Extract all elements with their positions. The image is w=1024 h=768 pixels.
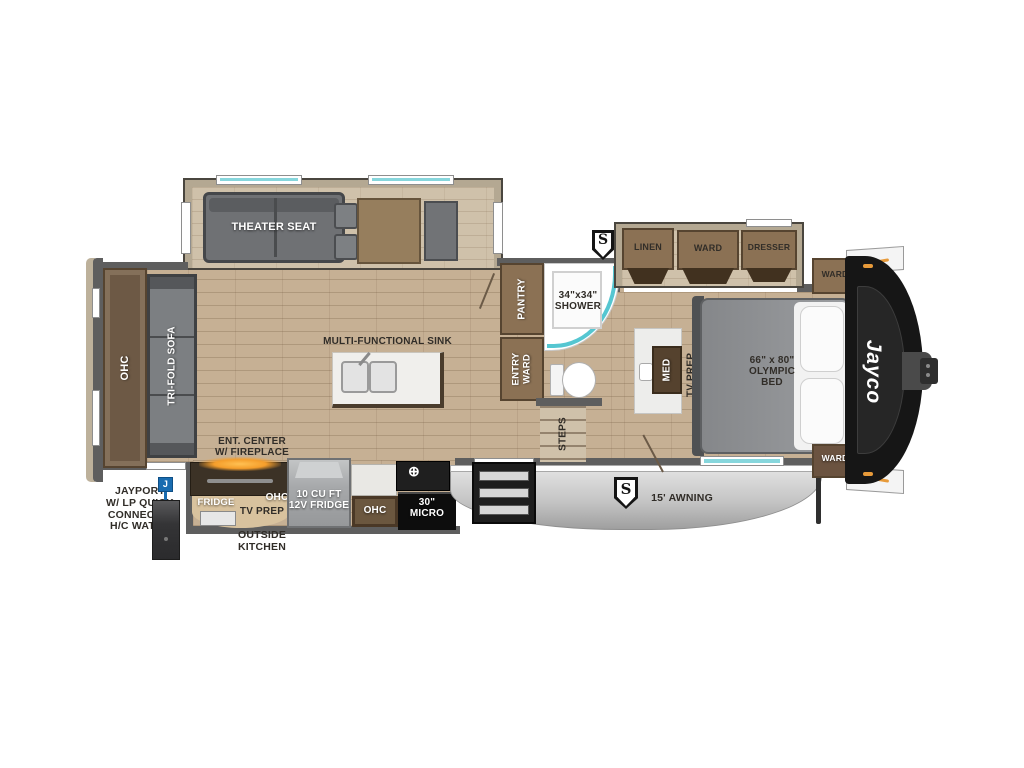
slide-window-left <box>181 202 191 254</box>
bedroom-window-glass <box>704 459 780 463</box>
fridge-12v-label: 10 CU FT 12V FRIDGE <box>287 489 351 511</box>
stabilizer-marker-top-letter: S <box>592 232 614 248</box>
hitch-dot-1 <box>926 364 930 368</box>
kitchen-ohc-label: OHC <box>352 505 398 516</box>
ent-center-shelf <box>207 479 273 483</box>
utility-pedestal <box>152 500 180 560</box>
dinette-chair-2 <box>334 234 358 260</box>
awning-label: 15' AWNING <box>634 493 730 505</box>
fridge-12v-top <box>295 462 343 478</box>
stabilizer-marker-awning-letter: S <box>614 480 638 498</box>
interior-steps-label: STEPS <box>557 407 568 461</box>
dresser-window <box>746 219 792 227</box>
jayport-marker: J <box>158 477 173 492</box>
bottom-rear-opening <box>146 462 186 470</box>
kitchen-counter <box>351 464 397 496</box>
pantry-label: PANTRY <box>516 267 527 331</box>
entry-steps <box>472 462 536 524</box>
shower-label: 34"x34" SHOWER <box>548 290 608 312</box>
stabilizer-marker-top: S <box>592 230 614 260</box>
sink-island <box>332 352 444 408</box>
cap-marker-light-bottom <box>863 472 873 476</box>
sofa-arm-bottom <box>150 443 194 455</box>
hitch-dot-2 <box>926 373 930 377</box>
microwave-label: 30" MICRO <box>398 497 456 519</box>
rear-window-1 <box>92 288 100 318</box>
jayco-logo: Jayco <box>861 312 885 432</box>
bed-label: 66" x 80" OLYMPIC BED <box>722 355 822 389</box>
fireplace-glow <box>199 457 281 471</box>
slide-window-2-glass <box>372 178 450 181</box>
sofa-arm-top <box>150 277 194 289</box>
dresser-front <box>746 268 792 282</box>
dinette-table <box>357 198 421 264</box>
entry-step-1 <box>479 471 529 481</box>
outside-kitchen-title: OUTSIDE KITCHEN <box>224 530 300 554</box>
utility-pedestal-dot <box>164 537 168 541</box>
ent-center-counter <box>190 462 290 496</box>
outside-fridge-icon <box>200 511 236 526</box>
vanity-sink <box>639 363 653 381</box>
bath-wall <box>536 398 602 406</box>
cap-marker-light-top <box>863 264 873 268</box>
floorplan-canvas: THEATER SEAT OHC TRI-FOLD SOFA MULTI-FUN… <box>0 0 1024 768</box>
theater-seat-label: THEATER SEAT <box>213 221 335 233</box>
outside-fridge-label: FRIDGE <box>192 498 240 509</box>
med-label: MED <box>661 348 672 392</box>
sink-label: MULTI-FUNCTIONAL SINK <box>305 336 470 347</box>
burner-icon: ⊕ <box>405 464 423 480</box>
entry-step-2 <box>479 488 529 498</box>
ent-center-label: ENT. CENTER W/ FIREPLACE <box>196 436 308 458</box>
slide-window-right <box>493 202 503 254</box>
jayport-marker-letter: J <box>159 479 172 489</box>
hitch-pin-box <box>920 358 938 384</box>
outside-tv-prep-label: TV PREP <box>236 506 288 517</box>
entry-ward-label: ENTRY WARD <box>511 341 532 397</box>
toilet-bowl <box>562 362 596 398</box>
tri-fold-sofa-label: TRI-FOLD SOFA <box>166 291 177 441</box>
linen-label: LINEN <box>622 242 674 252</box>
rear-ohc-label: OHC <box>119 308 131 428</box>
dinette-chair-1 <box>334 203 358 229</box>
sink-bowl-1 <box>341 361 369 393</box>
dinette-bench <box>424 201 458 261</box>
slide-window-1-glass <box>220 178 298 181</box>
dresser-label: DRESSER <box>741 243 797 253</box>
ward-slide-label: WARD <box>677 243 739 253</box>
ward-slide-front <box>682 268 734 284</box>
sink-bowl-2 <box>369 361 397 393</box>
entry-step-3 <box>479 505 529 515</box>
cooktop: ⊕ <box>396 461 450 491</box>
rear-window-2 <box>92 390 100 446</box>
